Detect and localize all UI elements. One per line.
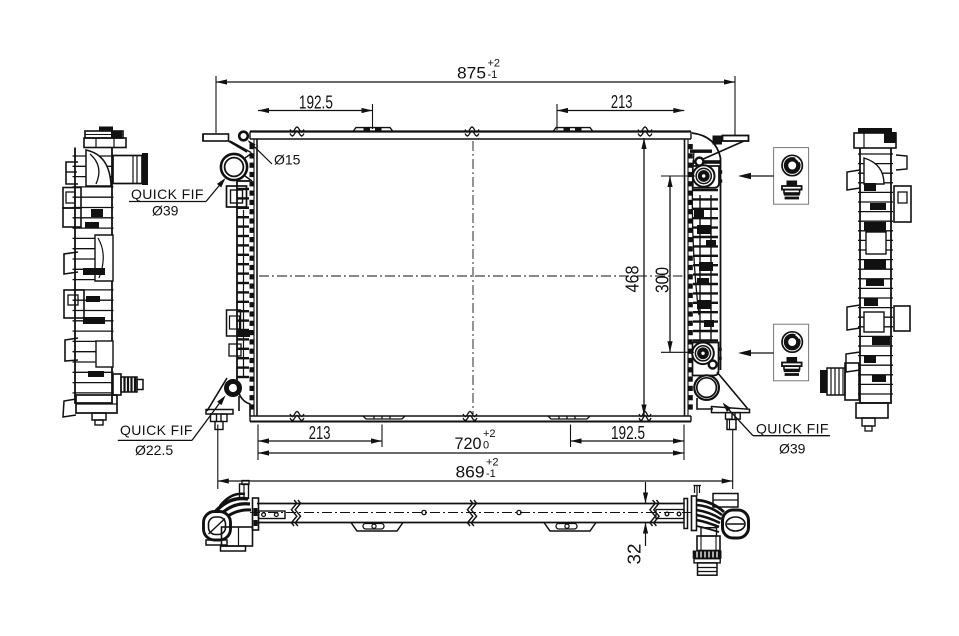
svg-text:720: 720 [455,435,482,453]
svg-text:32: 32 [625,544,645,565]
svg-text:Ø39: Ø39 [779,441,806,457]
svg-text:+2: +2 [486,457,499,469]
svg-text:QUICK FIF: QUICK FIF [131,186,204,202]
svg-text:QUICK FIF: QUICK FIF [120,422,193,438]
svg-text:Ø39: Ø39 [152,203,179,219]
svg-text:300: 300 [653,267,673,293]
svg-text:468: 468 [623,266,643,293]
svg-text:192.5: 192.5 [299,92,333,112]
svg-text:-1: -1 [486,468,496,480]
svg-text:0: 0 [483,440,489,452]
svg-text:-1: -1 [488,69,498,81]
svg-text:+2: +2 [488,58,501,70]
svg-text:869: 869 [456,464,485,482]
svg-text:213: 213 [611,92,633,112]
svg-text:+2: +2 [483,428,496,440]
svg-text:Ø15: Ø15 [274,152,301,168]
svg-text:Ø22.5: Ø22.5 [135,442,173,458]
svg-text:213: 213 [309,423,331,443]
svg-text:875: 875 [457,65,486,83]
svg-text:192.5: 192.5 [611,423,645,443]
svg-text:QUICK FIF: QUICK FIF [756,421,829,437]
